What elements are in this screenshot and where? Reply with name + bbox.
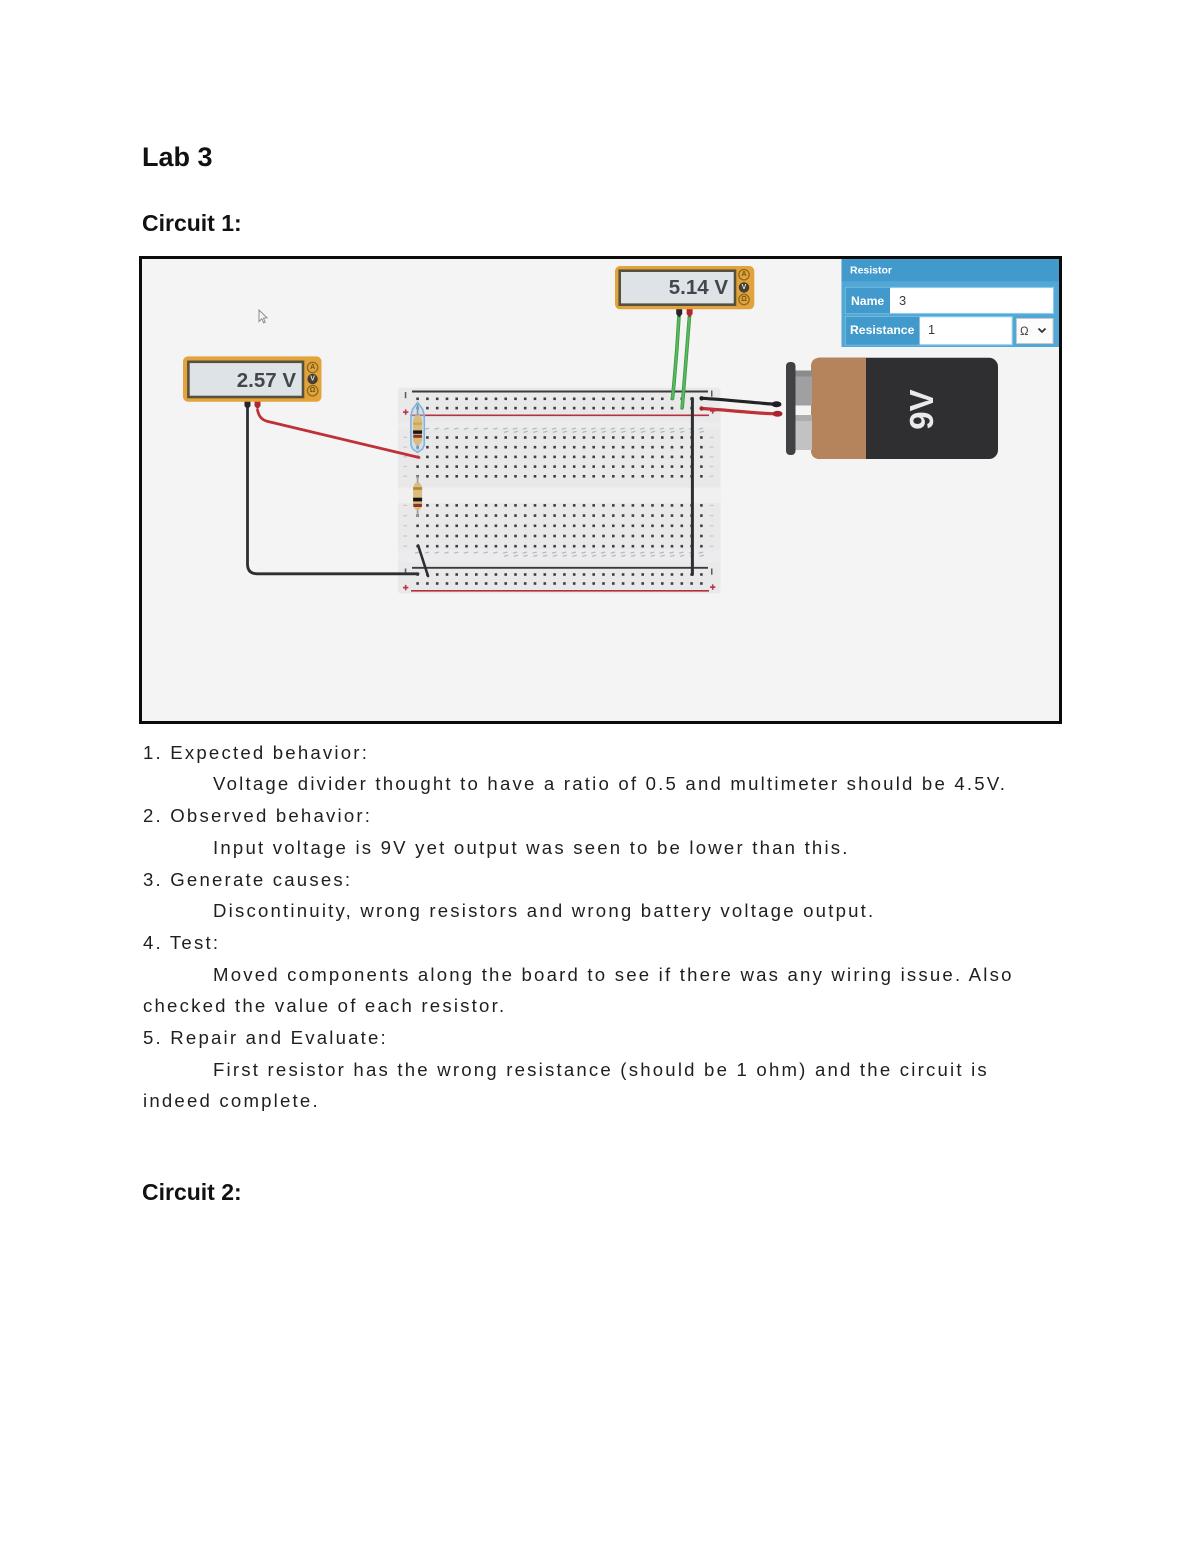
svg-text:9V: 9V xyxy=(903,389,940,429)
svg-text:V: V xyxy=(310,376,315,383)
svg-text:Resistance: Resistance xyxy=(850,323,915,337)
svg-text:A: A xyxy=(741,271,746,278)
svg-text:Ω: Ω xyxy=(310,387,316,394)
svg-text:5.14 V: 5.14 V xyxy=(669,276,729,299)
svg-text:Ω: Ω xyxy=(1020,326,1029,338)
svg-text:Resistor: Resistor xyxy=(850,265,892,277)
svg-text:V: V xyxy=(742,284,747,291)
svg-text:1: 1 xyxy=(928,322,935,337)
svg-text:2.57 V: 2.57 V xyxy=(237,369,297,392)
svg-text:Name: Name xyxy=(851,294,884,308)
svg-text:Ω: Ω xyxy=(741,296,747,303)
svg-text:A: A xyxy=(310,364,315,371)
svg-text:3: 3 xyxy=(899,293,906,308)
